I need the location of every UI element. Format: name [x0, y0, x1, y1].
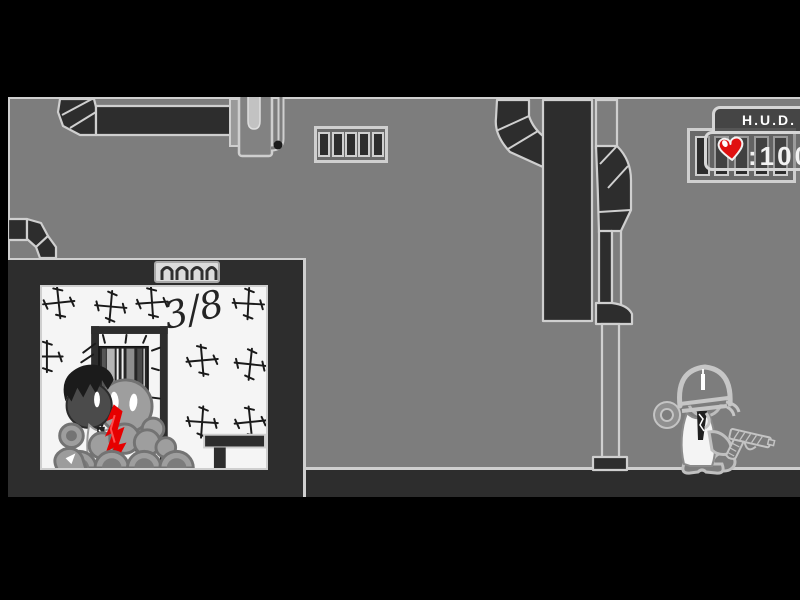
- progress-label: 3/8: [159, 287, 228, 338]
- hud-title-box: H.U.D.: [712, 106, 800, 134]
- arch-vent: [154, 261, 220, 283]
- health-value: :100: [748, 141, 800, 171]
- standpipe: [602, 324, 619, 458]
- top-letterbox: [0, 0, 800, 97]
- vent-slat: [358, 132, 370, 157]
- vent-slat: [345, 132, 357, 157]
- central-pillar: [543, 100, 592, 321]
- vent-slat: [372, 132, 384, 157]
- left-letterbox: [0, 0, 8, 600]
- room-art: 3/8: [42, 287, 266, 468]
- hud-title: H.U.D.: [742, 112, 796, 128]
- ceiling-pipe: [248, 92, 260, 129]
- game-viewport[interactable]: 3/8: [0, 0, 800, 600]
- hud-panel: :100: [704, 131, 800, 171]
- central-pillar-assembly: [486, 86, 636, 476]
- standpipe-base: [593, 457, 627, 470]
- wall-elbow-duct: [8, 214, 60, 260]
- corpse-pile: [55, 365, 193, 468]
- shoulder-ring: [654, 402, 680, 428]
- right-pipe-top: [596, 100, 617, 148]
- heart-icon: [716, 135, 746, 163]
- white-room: 3/8: [40, 285, 268, 470]
- ceiling-duct-left: [50, 90, 295, 160]
- pillar-foot-elbow: [596, 303, 632, 324]
- player-character: [645, 358, 780, 476]
- arch-slats: [162, 268, 216, 281]
- vent-slat: [332, 132, 344, 157]
- vent-slat: [318, 132, 330, 157]
- pillar-elbow-right: [596, 146, 631, 233]
- bottom-letterbox: [0, 497, 800, 600]
- pillar-elbow-left: [496, 100, 543, 167]
- bench: [204, 435, 265, 468]
- wall-vent-grill: [314, 126, 388, 163]
